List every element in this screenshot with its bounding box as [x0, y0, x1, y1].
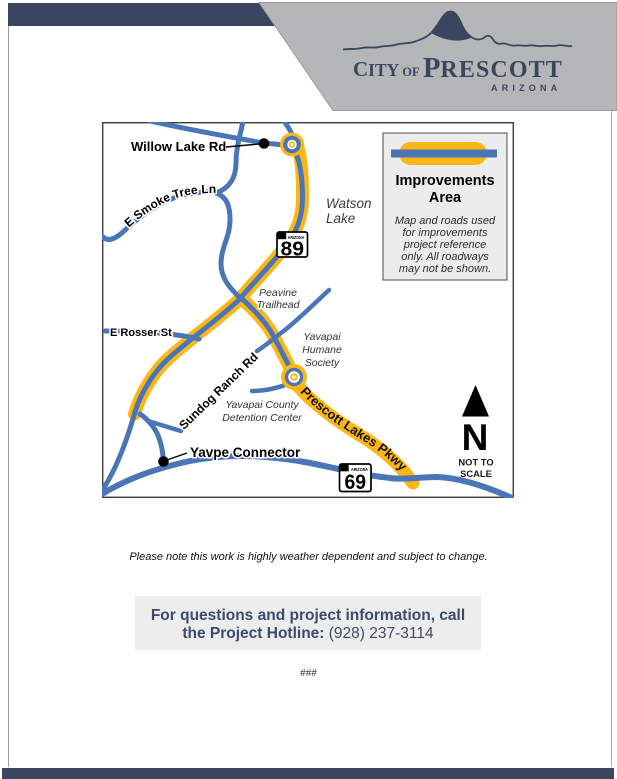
svg-text:Willow Lake Rd: Willow Lake Rd [131, 139, 226, 154]
svg-text:Yavpe Connector: Yavpe Connector [190, 445, 301, 460]
svg-text:E Rosser St: E Rosser St [110, 327, 172, 339]
svg-text:only. All roadways: only. All roadways [401, 251, 489, 263]
svg-text:N: N [462, 417, 489, 458]
svg-text:Improvements: Improvements [395, 173, 494, 189]
svg-text:69: 69 [345, 471, 367, 494]
svg-text:project reference: project reference [403, 239, 487, 251]
svg-text:Society: Society [305, 357, 340, 369]
svg-text:PRESCOTT: PRESCOTT [423, 53, 563, 84]
svg-text:Yavapai: Yavapai [303, 331, 341, 343]
svg-text:Yavapai County: Yavapai County [225, 399, 299, 411]
svg-text:Watson: Watson [326, 196, 372, 211]
svg-text:Trailhead: Trailhead [257, 299, 301, 311]
svg-text:for improvements: for improvements [403, 227, 488, 239]
svg-text:89: 89 [281, 239, 305, 261]
svg-text:Area: Area [429, 190, 462, 206]
svg-text:may not be shown.: may not be shown. [399, 263, 491, 275]
svg-text:SCALE: SCALE [460, 468, 492, 479]
svg-text:Peavine: Peavine [259, 287, 297, 299]
svg-text:ARIZONA: ARIZONA [491, 83, 561, 93]
svg-text:Detention Center: Detention Center [222, 412, 302, 424]
svg-text:NOT TO: NOT TO [458, 457, 493, 468]
svg-text:Lake: Lake [326, 211, 355, 226]
svg-text:Map and roads used: Map and roads used [395, 215, 496, 227]
svg-text:Humane: Humane [302, 344, 342, 356]
